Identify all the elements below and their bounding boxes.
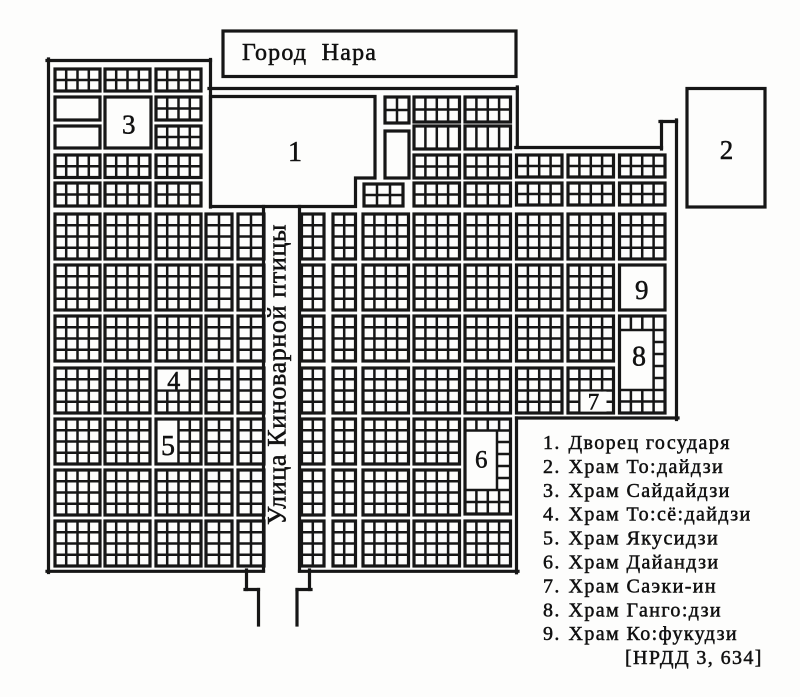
svg-text:Храм Дайандзи: Храм Дайандзи [569,552,720,574]
svg-text:Храм Сайдайдзи: Храм Сайдайдзи [569,480,731,502]
svg-text:[НРДД 3, 634]: [НРДД 3, 634] [625,647,763,669]
svg-text:Храм Ко:фукудзи: Храм Ко:фукудзи [569,623,739,645]
svg-text:2.: 2. [543,456,561,478]
svg-text:Город Нара: Город Нара [242,40,377,66]
svg-text:4.: 4. [543,504,561,526]
svg-text:Улица Киноварной птицы: Улица Киноварной птицы [263,224,292,525]
svg-text:5: 5 [161,431,175,462]
svg-text:4: 4 [167,367,180,396]
svg-text:9: 9 [635,275,649,305]
svg-text:7: 7 [588,390,600,415]
svg-text:Храм Ганго:дзи: Храм Ганго:дзи [569,599,723,621]
svg-text:1: 1 [288,137,302,168]
svg-text:Храм Саэки-ин: Храм Саэки-ин [569,575,717,597]
svg-text:3.: 3. [543,480,561,502]
svg-text:Дворец государя: Дворец государя [569,432,731,454]
svg-text:7.: 7. [543,575,561,597]
svg-text:2: 2 [720,135,734,165]
svg-text:Храм То:сё:дайдзи: Храм То:сё:дайдзи [569,504,752,526]
svg-text:1.: 1. [543,432,561,454]
svg-text:Храм Якусидзи: Храм Якусидзи [569,528,720,550]
svg-text:6.: 6. [543,552,561,574]
svg-text:6: 6 [475,447,488,474]
svg-text:3: 3 [122,110,136,140]
svg-text:9.: 9. [543,623,561,645]
svg-text:Храм То:дайдзи: Храм То:дайдзи [569,456,725,478]
svg-text:5.: 5. [543,528,561,550]
svg-text:8.: 8. [543,599,561,621]
svg-text:8: 8 [632,342,646,373]
